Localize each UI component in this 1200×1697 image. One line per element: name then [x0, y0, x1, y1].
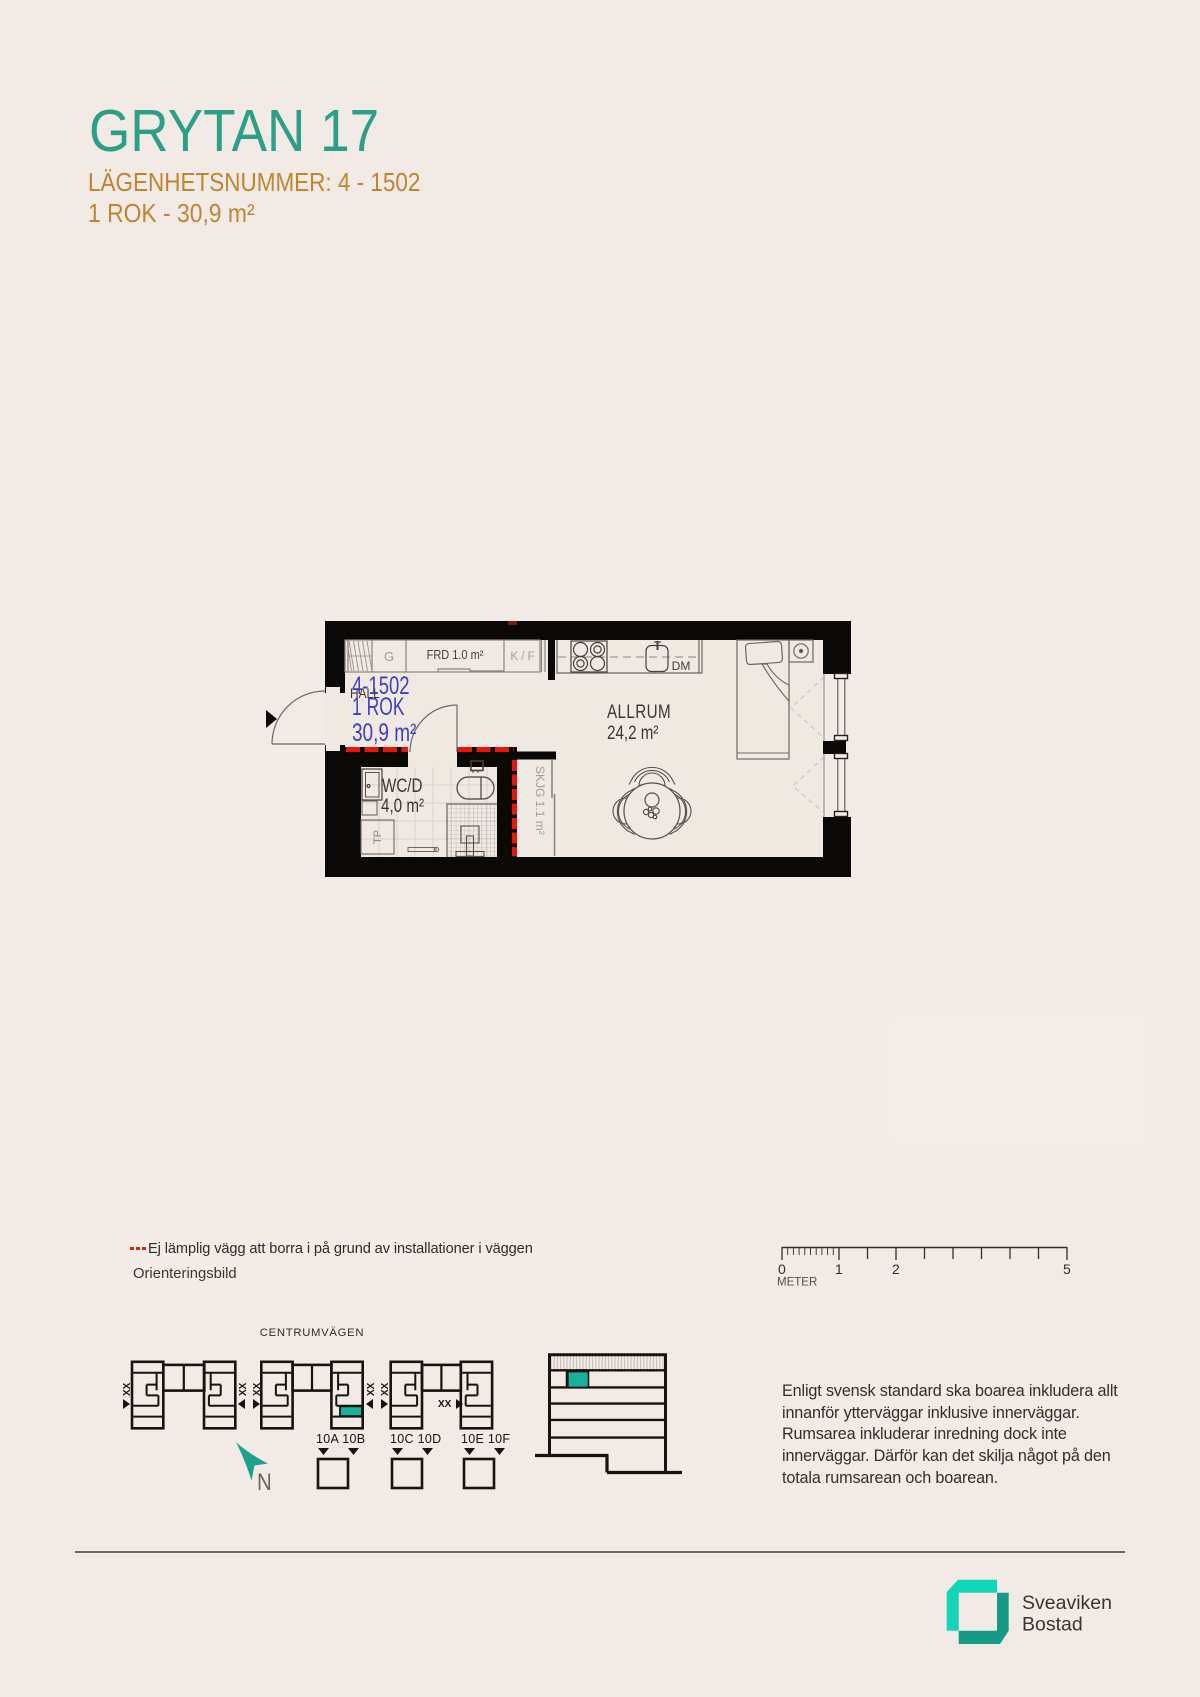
svg-text:Sveaviken: Sveaviken	[1022, 1592, 1112, 1614]
svg-text:SKJG 1.1 m²: SKJG 1.1 m²	[533, 766, 547, 835]
svg-text:24,2 m²: 24,2 m²	[607, 721, 659, 743]
svg-text:XX: XX	[366, 1382, 377, 1396]
svg-text:4,0 m²: 4,0 m²	[381, 794, 424, 816]
svg-text:N: N	[257, 1468, 272, 1495]
svg-text:XX: XX	[380, 1382, 391, 1396]
svg-text:1: 1	[835, 1261, 843, 1277]
svg-text:5: 5	[1063, 1261, 1071, 1277]
svg-text:FRD 1.0 m²: FRD 1.0 m²	[427, 648, 484, 662]
svg-text:XX: XX	[122, 1382, 133, 1396]
svg-text:10A 10B: 10A 10B	[316, 1432, 365, 1446]
svg-text:30,9 m²: 30,9 m²	[352, 718, 416, 746]
svg-text:2: 2	[892, 1261, 900, 1277]
svg-text:0: 0	[778, 1261, 786, 1277]
svg-text:METER: METER	[777, 1277, 817, 1289]
svg-text:10E 10F: 10E 10F	[461, 1432, 510, 1446]
svg-text:TP: TP	[372, 830, 384, 844]
svg-text:Bostad: Bostad	[1022, 1614, 1083, 1636]
svg-text:XX: XX	[252, 1382, 263, 1396]
svg-text:HALL: HALL	[350, 685, 380, 701]
svg-text:K / F: K / F	[510, 651, 534, 663]
svg-text:DM: DM	[672, 659, 691, 673]
svg-text:CENTRUMVÄGEN: CENTRUMVÄGEN	[260, 1327, 364, 1339]
svg-text:WC/D: WC/D	[382, 774, 422, 796]
svg-text:ALLRUM: ALLRUM	[607, 700, 671, 722]
svg-text:G: G	[384, 649, 394, 664]
svg-text:XX: XX	[438, 1399, 452, 1410]
svg-text:XX: XX	[238, 1382, 249, 1396]
svg-text:10C 10D: 10C 10D	[390, 1432, 441, 1446]
